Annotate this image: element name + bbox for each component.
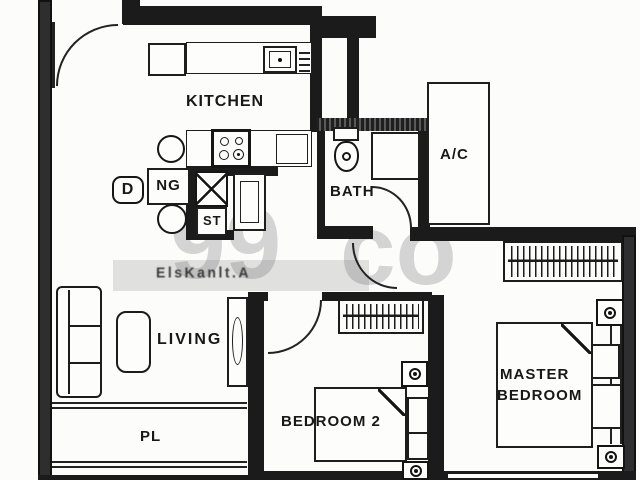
planter-top-line-1 <box>52 402 247 404</box>
washer-icon <box>195 171 228 207</box>
bedroom2-window-post-bottom <box>402 461 429 480</box>
sink-icon <box>263 46 297 73</box>
bedroom2-pillow-fold <box>378 389 405 416</box>
store-label: ST <box>203 213 222 228</box>
wall-living-bedroom2-divider <box>248 292 264 480</box>
bedroom2-door-arc <box>268 300 322 354</box>
bath-label: BATH <box>330 183 375 200</box>
master-label-line1: MASTER <box>500 366 569 383</box>
master-nightstand-1 <box>591 344 620 379</box>
planter-label: PL <box>140 428 161 445</box>
shower-area <box>371 132 420 180</box>
dish-rack-icon <box>299 48 310 72</box>
stove-icon <box>211 129 251 168</box>
sofa <box>56 286 102 398</box>
toilet-bowl-icon <box>334 141 359 172</box>
dining-label-d: D <box>122 181 135 198</box>
entry-door-arc <box>56 24 118 86</box>
wall-master-top <box>410 227 636 241</box>
wall-bedroom2-master-divider <box>428 295 444 480</box>
ac-label: A/C <box>440 146 469 163</box>
kitchen-tall-unit <box>233 173 266 231</box>
wall-bath-left <box>317 131 325 230</box>
wall-shaft-right <box>347 36 359 122</box>
planter-bottom-line-1 <box>52 461 247 463</box>
master-label-line2: BEDROOM <box>497 387 582 404</box>
master-bed <box>496 322 593 448</box>
wall-right-exterior <box>622 235 636 480</box>
dining-chair-bottom-icon <box>157 204 187 234</box>
tv-console <box>227 297 248 387</box>
bedroom2-wardrobe <box>338 299 424 334</box>
dining-chair-d-box: D <box>112 176 144 204</box>
master-wardrobe <box>503 241 623 282</box>
wall-bath-bottom <box>317 226 373 239</box>
wall-bottom-left <box>38 475 250 480</box>
toilet-tank-icon <box>333 127 359 141</box>
dining-label-ng: NG <box>156 177 181 194</box>
master-window-post-top <box>596 299 624 326</box>
master-nightstand-2 <box>591 384 622 429</box>
bedroom2-nightstand <box>407 397 429 460</box>
master-pillow-fold <box>561 324 591 354</box>
dining-chair-top-icon <box>157 135 185 163</box>
master-window-post-bottom <box>597 445 625 469</box>
fridge-icon <box>148 43 186 76</box>
entry-door-jamb <box>52 22 55 88</box>
wall-top-2 <box>320 16 376 38</box>
garbled-watermark-text: ElsKanlt.A <box>156 263 251 280</box>
wall-kitchen-top <box>123 6 322 25</box>
floor-plan: 99 co ElsKanlt.A <box>0 0 640 480</box>
bath-door-arc <box>372 186 412 228</box>
wall-bedroom2-top-left <box>248 292 268 301</box>
bedroom2-label: BEDROOM 2 <box>281 413 381 430</box>
planter-top-line-2 <box>52 407 247 409</box>
wall-left-exterior <box>38 0 52 480</box>
coffee-table <box>116 311 151 373</box>
bedroom2-window-post-top <box>401 361 428 387</box>
planter-bottom-line-2 <box>52 466 247 468</box>
kitchen-cabinet-right <box>276 134 308 164</box>
kitchen-label: KITCHEN <box>186 93 264 111</box>
living-label: LIVING <box>157 331 222 349</box>
dining-table: NG <box>147 168 190 205</box>
master-bottom-window <box>448 474 598 478</box>
